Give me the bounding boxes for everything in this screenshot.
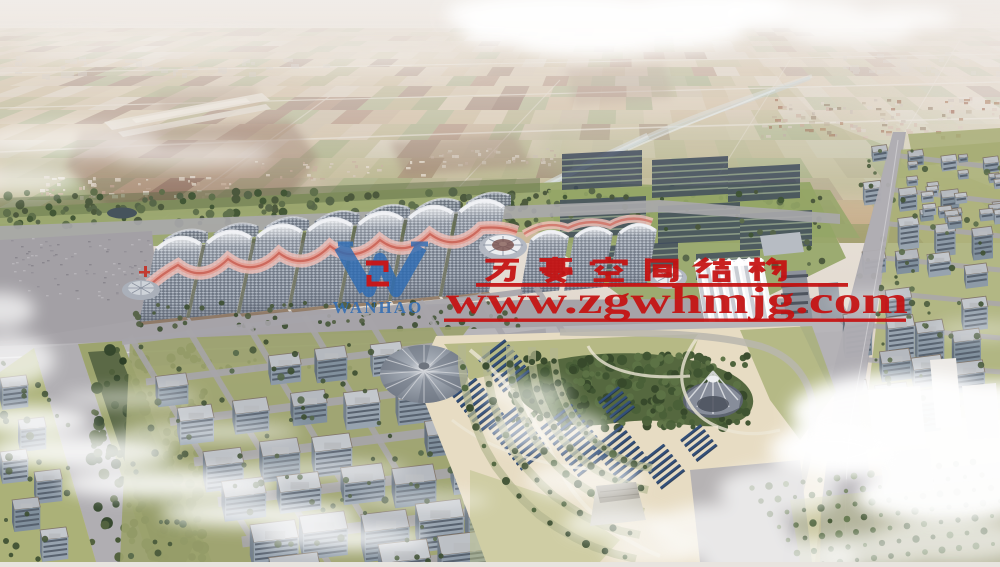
svg-text:WANHAO: WANHAO (333, 298, 423, 317)
svg-text:www.zgwhmjg.com: www.zgwhmjg.com (446, 280, 908, 322)
